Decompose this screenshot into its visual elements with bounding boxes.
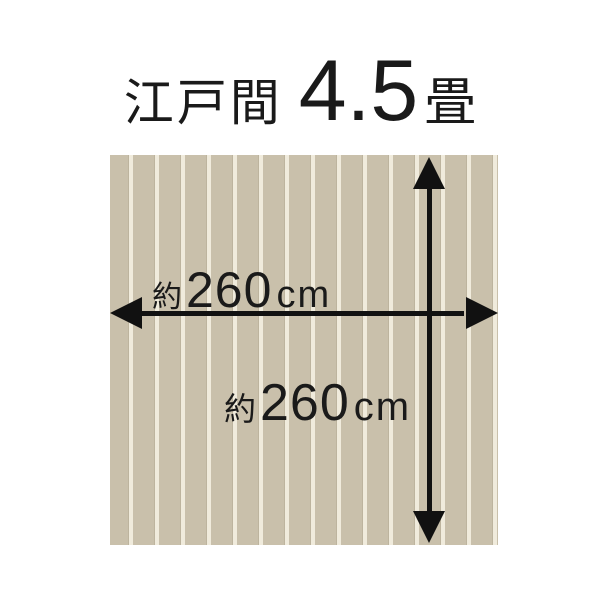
page-title: 江戸間 4.5 畳 bbox=[0, 48, 600, 134]
width-value: 260 bbox=[186, 265, 272, 315]
width-unit: cm bbox=[276, 276, 331, 314]
title-size-unit: 畳 bbox=[424, 77, 476, 129]
height-value: 260 bbox=[260, 377, 350, 429]
flooring-area bbox=[110, 155, 498, 545]
arrow-down-head-icon bbox=[413, 511, 445, 543]
height-arrow-line bbox=[427, 183, 432, 517]
height-unit: cm bbox=[354, 387, 411, 427]
arrow-right-head-icon bbox=[466, 297, 498, 329]
width-dimension-label: 約 260 cm bbox=[152, 265, 331, 315]
height-approx-prefix: 約 bbox=[224, 393, 256, 425]
height-dimension-label: 約 260 cm bbox=[224, 377, 411, 429]
dimension-diagram: 江戸間 4.5 畳 約 260 cm 約 260 cm bbox=[0, 0, 600, 600]
title-size-value: 4.5 bbox=[299, 48, 419, 134]
width-approx-prefix: 約 bbox=[152, 283, 182, 313]
title-region-label: 江戸間 bbox=[124, 78, 283, 128]
